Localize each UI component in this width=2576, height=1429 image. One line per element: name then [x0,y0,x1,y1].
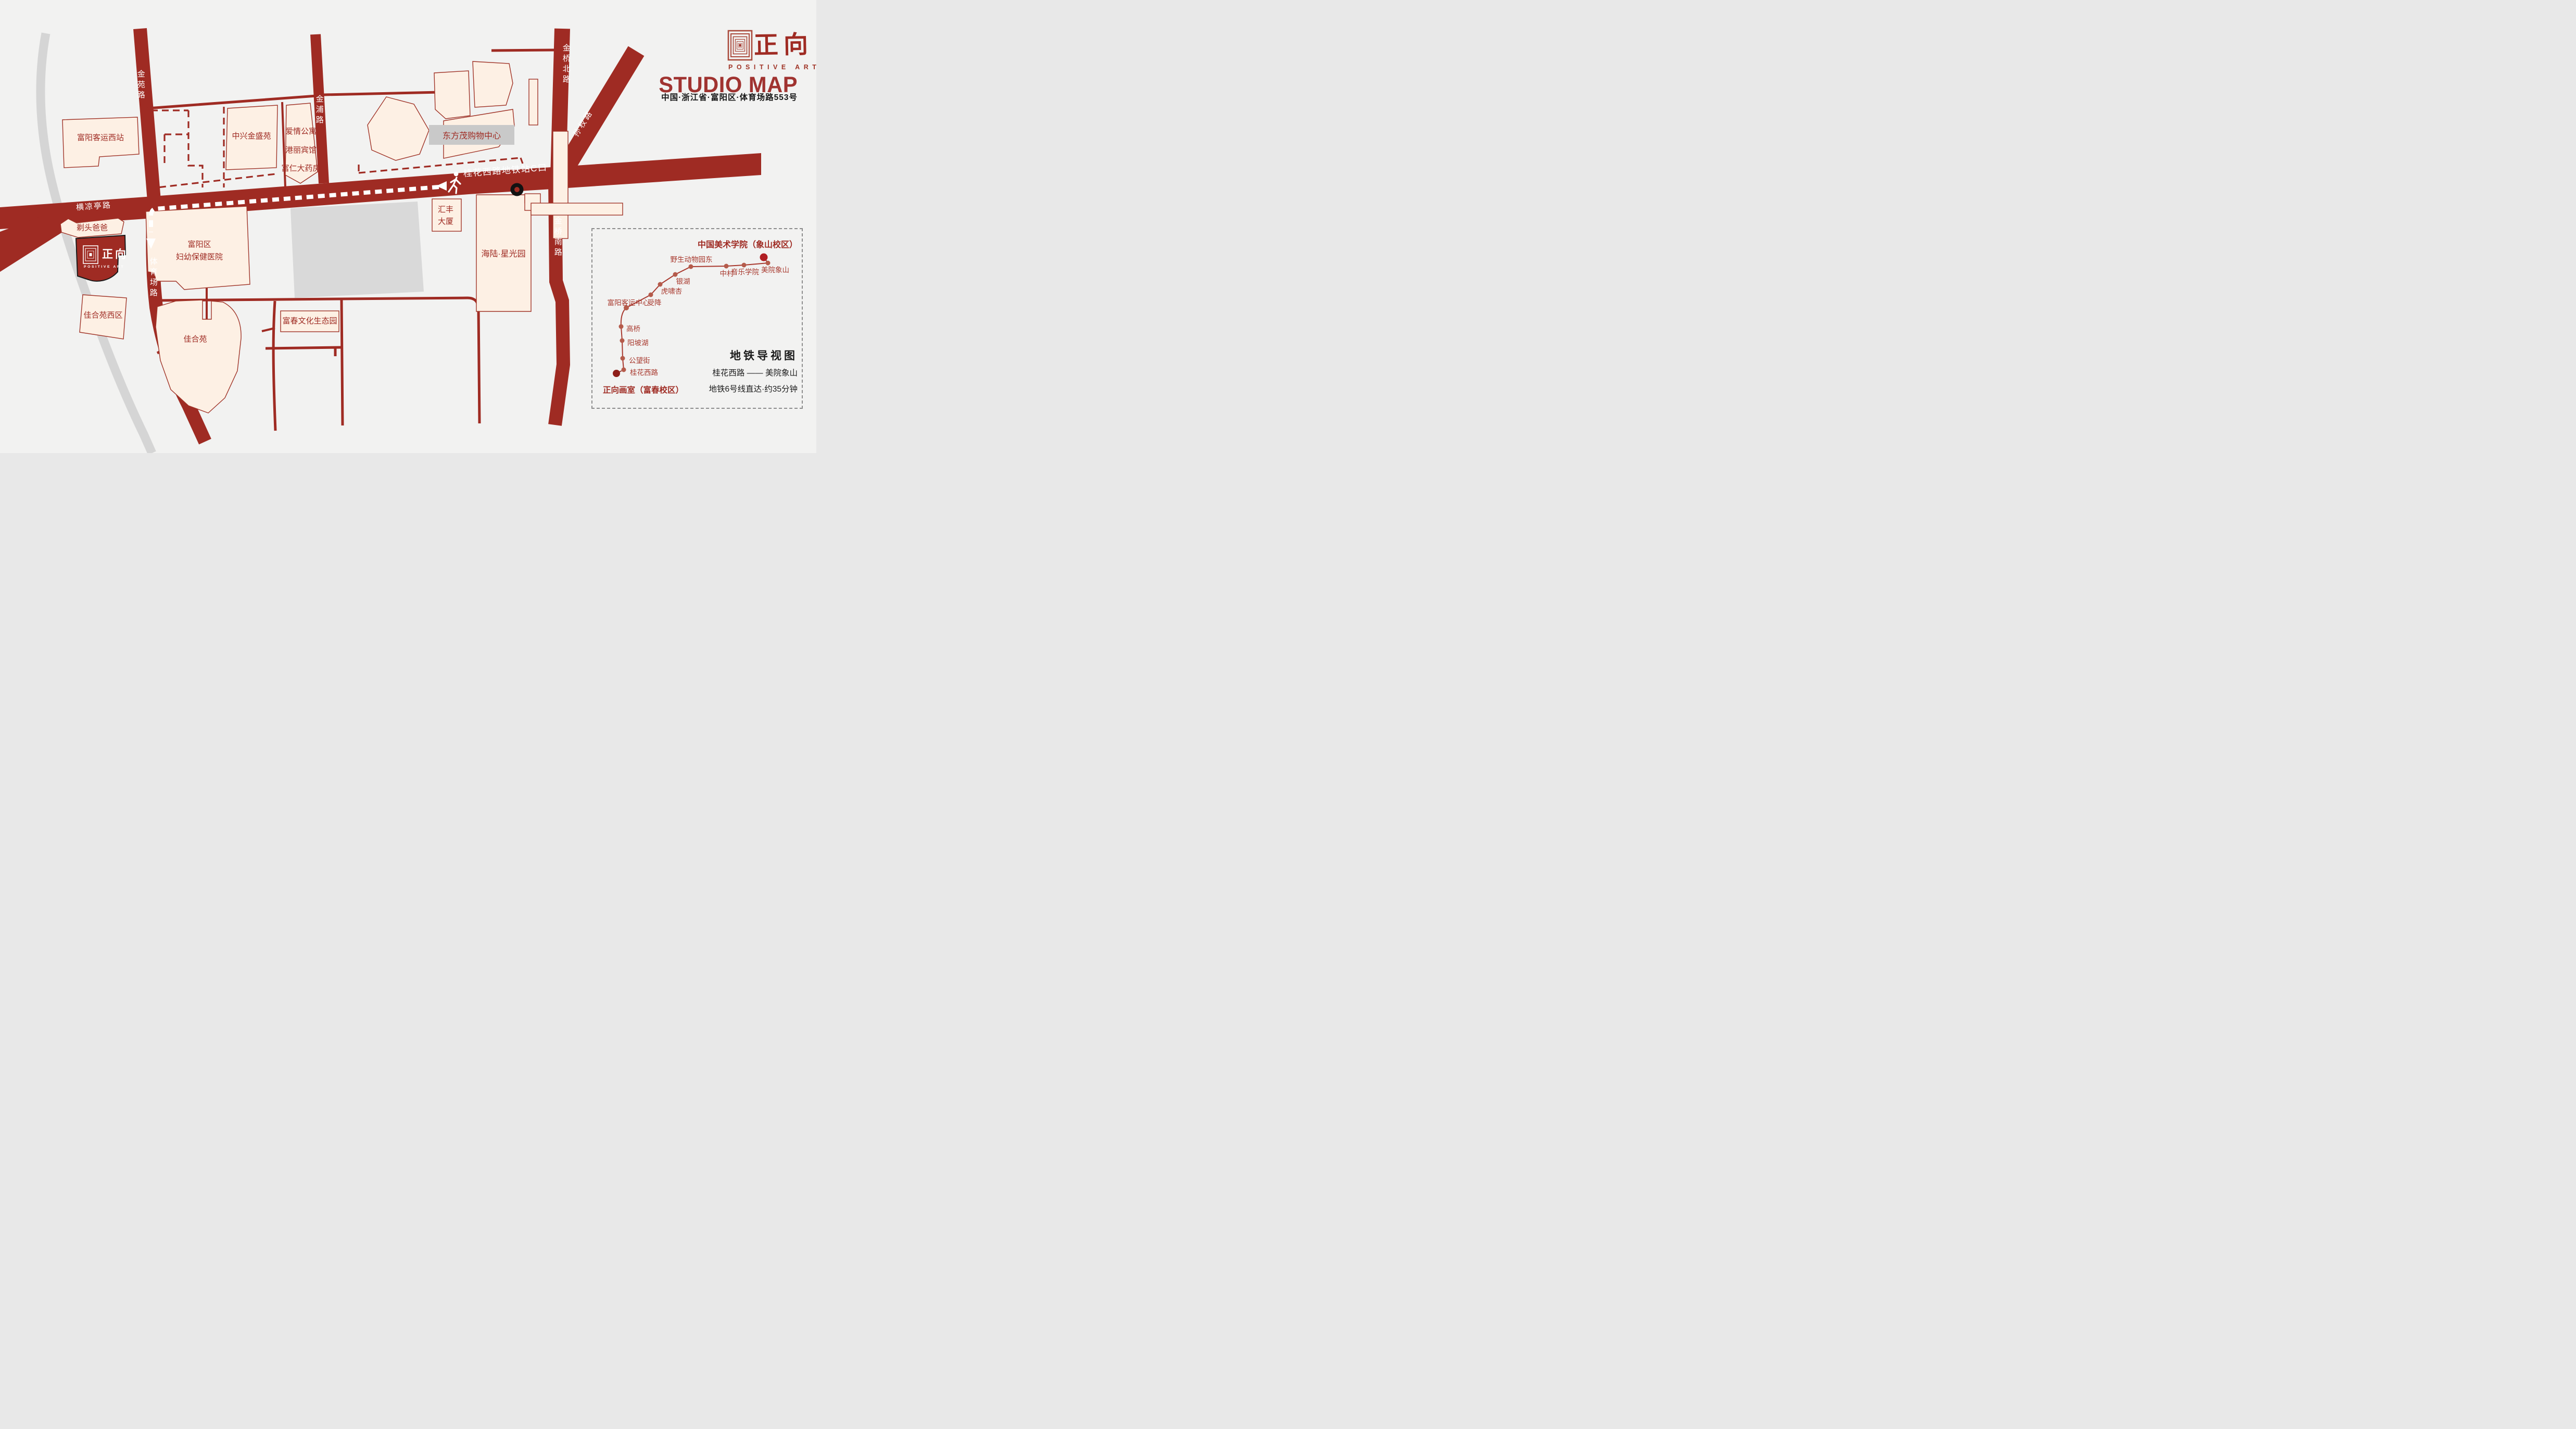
road-jinyuan [140,29,154,200]
building-label-fuchun-park: 富春文化生态园 [282,317,337,326]
studio-map-poster: 正向 POSITIVE ART STUDIO MAP 中国·浙江省·富阳区·体育… [0,0,816,453]
station-footprint-n [529,79,538,125]
gray-block [291,202,424,298]
road-label-tiyuchang: 体育场路 [148,257,158,299]
lane-south-v1 [273,301,275,431]
studio-building-name-en: POSITIVE ART [84,265,124,269]
building-label-jiaheyuan-west: 佳合苑西区 [83,311,122,320]
metro-destination-label: 中国美术学院（象山校区） [641,241,798,250]
station-shoujiang: 受降 [648,297,662,307]
building-jiaheyuan [156,300,241,413]
building-dfm-west [368,97,429,160]
building-label-titou: 剃头爸爸 [77,223,108,233]
station-guihuaxilu: 桂花西路 [630,367,658,377]
building-dfm-northeast [473,61,513,107]
station-yinyue-xueyuan: 音乐学院 [731,266,759,277]
building-label-gangli: 港丽宾馆 [285,146,317,155]
station-huxiaoxing: 虎啸杏 [661,285,683,296]
building-label-hospital: 富阳区 妇幼保健医院 [176,239,223,264]
dongfangmao-text: 东方茂购物中心 [443,129,501,141]
station-meiyuan-xiangshan: 美院象山 [761,264,789,274]
road-sunquan [559,51,636,178]
hospital-line2: 妇幼保健医院 [176,251,223,264]
station-gaoqiao: 高桥 [626,323,640,333]
metro-duration-label: 地铁6号线直达·约35分钟 [641,385,798,394]
lane-south-h2 [266,347,342,356]
studio-address: 中国·浙江省·富阳区·体育场路553号 [589,93,798,103]
building-label-fuyang-west-station: 富阳客运西站 [77,133,124,143]
station-footprint-h [531,203,623,215]
station-yinhu: 银湖 [676,275,690,286]
lane-south-v2 [342,300,343,425]
brand-name-cn: 正向 [754,30,814,59]
road-label-jinqiao-south: 金桥南路 [553,217,562,258]
building-label-huifeng: 汇丰大厦 [438,204,456,228]
station-yangpohu: 阳坡湖 [627,337,649,347]
metro-route-label: 桂花西路 —— 美院象山 [641,369,798,378]
building-label-hailu: 海陆·星光园 [481,250,525,260]
brand-logo-icon [728,31,752,60]
station-fuyang-keyun-center: 富阳客运中心 [608,297,650,307]
building-label-furen: 富仁大药房 [281,164,320,173]
hospital-line1: 富阳区 [176,239,223,251]
building-label-jiaheyuan: 佳合苑 [183,335,207,344]
road-label-jinyuan: 金苑路 [136,70,145,101]
studio-logo-mark [83,246,98,264]
building-label-dongfangmao: 东方茂购物中心 [429,125,514,145]
lane-mid [282,102,285,187]
road-label-jinqiao-north: 金桥北路 [561,44,571,85]
station-yesheng-dongwuyuan-east: 野生动物园东 [671,254,713,264]
metro-exit-marker-core [514,187,520,192]
studio-building-name-cn: 正向 [102,248,128,261]
building-label-aiqing: 爱情公寓 [285,127,317,136]
lane-north-stub [491,50,555,51]
building-label-zhongxing: 中兴金盛苑 [232,132,271,141]
building-dfm-north [434,71,470,119]
station-gongwangjie: 公望街 [629,355,650,365]
brand-name-en: POSITIVE ART [728,64,816,71]
metro-panel-title: 地铁导视图 [641,350,798,363]
road-label-jinpu: 金浦路 [314,95,324,126]
